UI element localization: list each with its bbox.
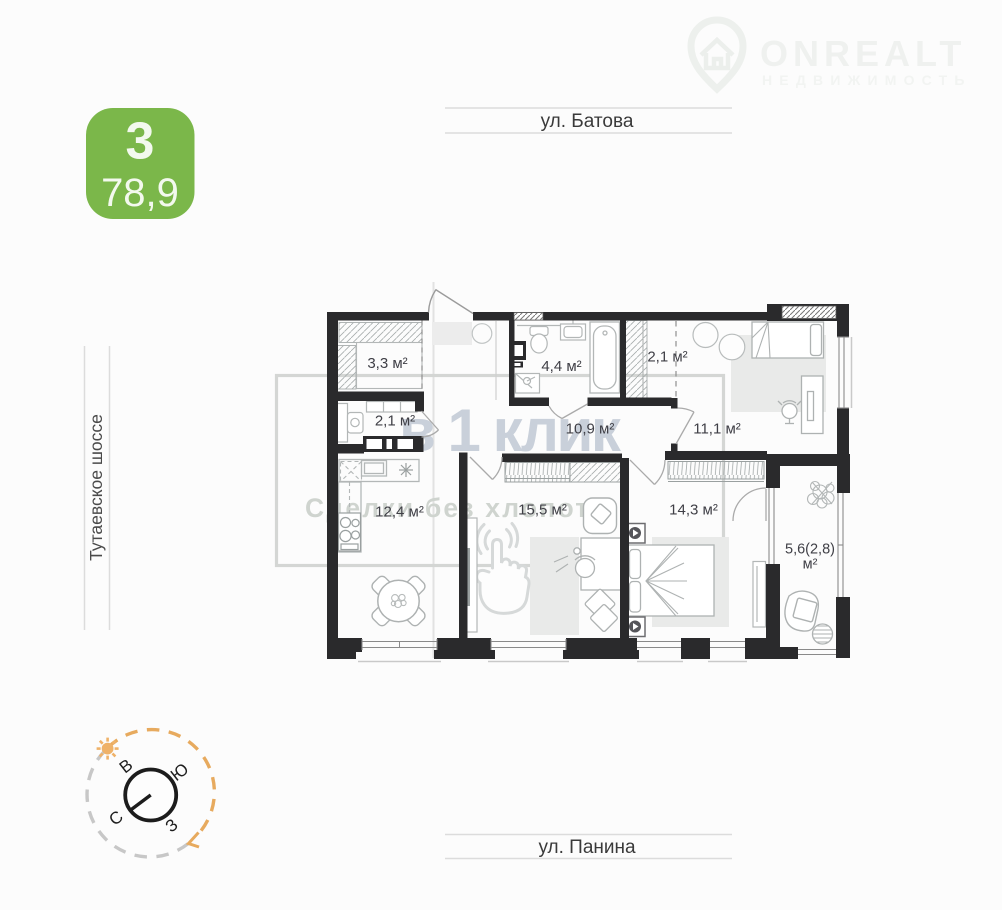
svg-text:Тутаевское шоссе: Тутаевское шоссе (86, 414, 106, 561)
svg-text:5,6(2,8): 5,6(2,8) (785, 542, 835, 558)
svg-text:11,1 м²: 11,1 м² (693, 421, 741, 438)
svg-text:ONREALT: ONREALT (760, 33, 966, 74)
svg-text:3,3 м²: 3,3 м² (367, 355, 407, 372)
svg-text:2,1 м²: 2,1 м² (375, 413, 415, 430)
svg-text:2,1 м²: 2,1 м² (647, 349, 687, 366)
svg-text:14,3 м²: 14,3 м² (669, 502, 718, 519)
svg-text:4,4 м²: 4,4 м² (541, 358, 581, 375)
svg-text:ул. Панина: ул. Панина (538, 837, 636, 858)
svg-text:78,9: 78,9 (101, 171, 179, 215)
svg-text:15,5 м²: 15,5 м² (518, 502, 567, 519)
svg-text:10,9 м²: 10,9 м² (566, 421, 615, 438)
svg-text:12,4 м²: 12,4 м² (375, 504, 424, 521)
svg-text:м²: м² (803, 557, 818, 573)
svg-text:НЕДВИЖИМОСТЬ: НЕДВИЖИМОСТЬ (762, 72, 972, 88)
svg-text:ул. Батова: ул. Батова (541, 111, 634, 132)
svg-text:3: 3 (126, 113, 155, 171)
